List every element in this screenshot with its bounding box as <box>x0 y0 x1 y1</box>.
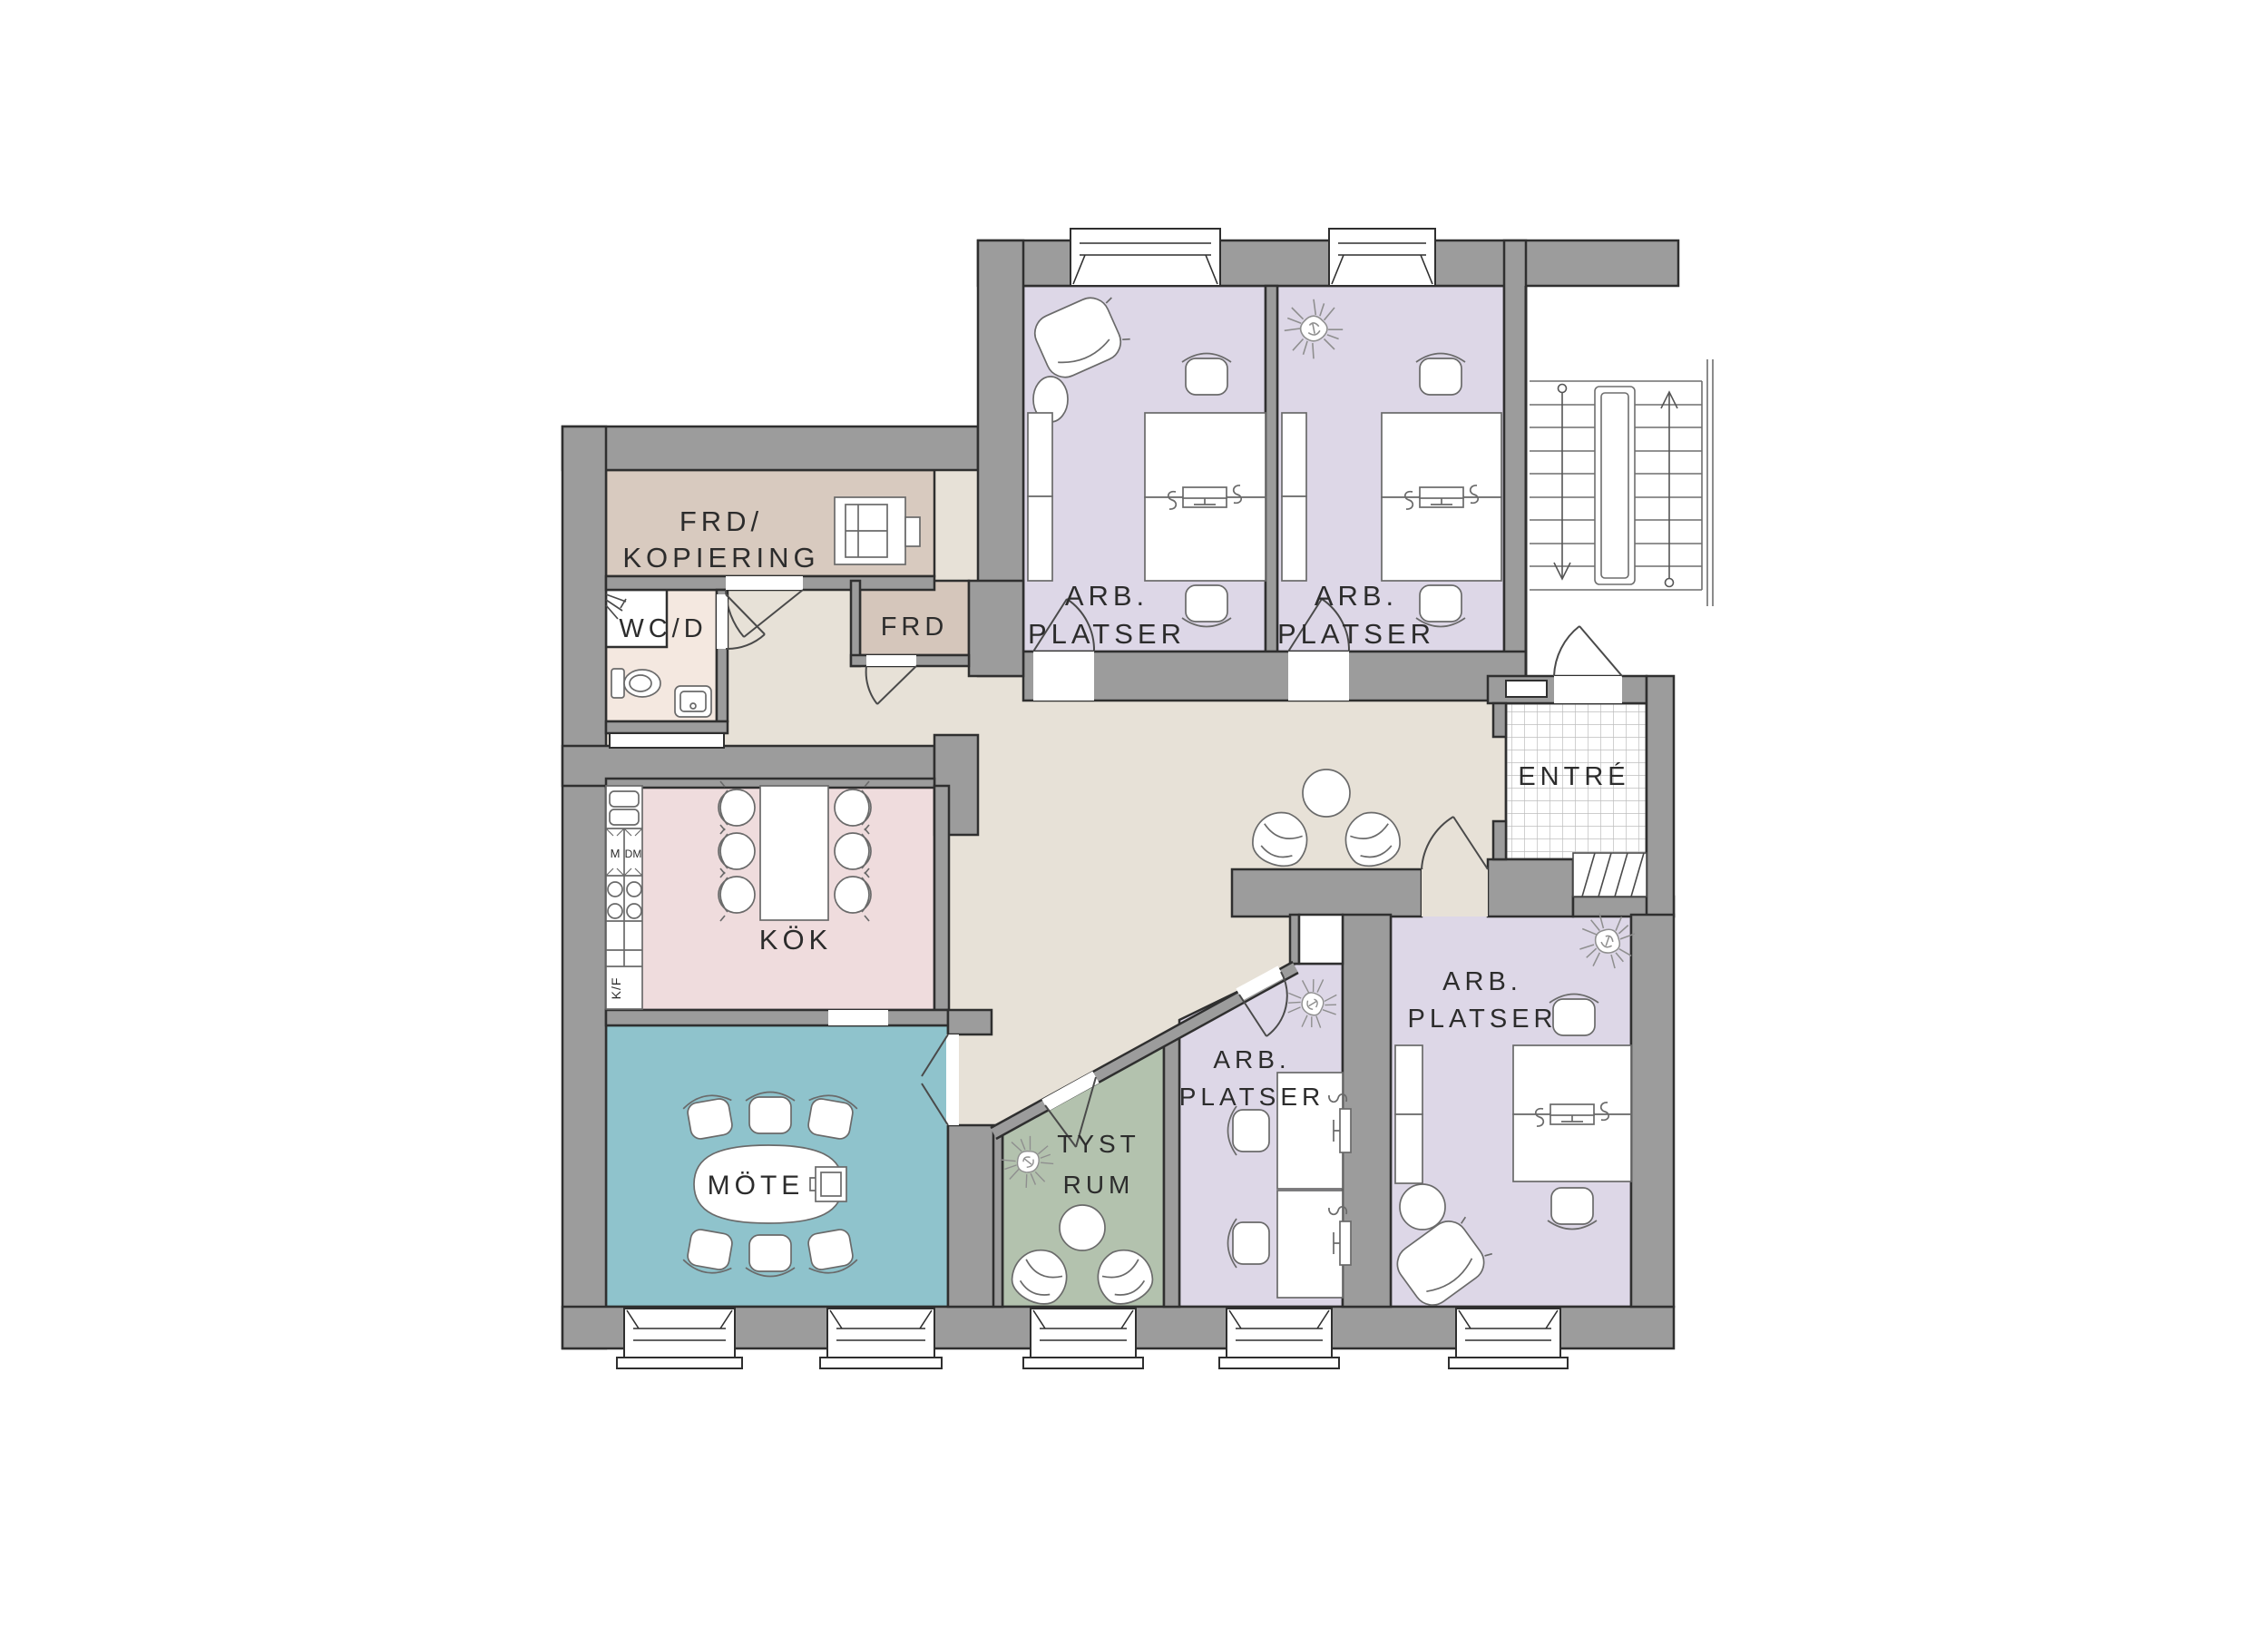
wall-wcd-bottom <box>606 721 728 733</box>
room-label-tyst-2: RUM <box>1063 1171 1135 1199</box>
window-bottom-5 <box>1449 1309 1568 1368</box>
wall-left <box>562 426 606 1348</box>
room-label-arb-s-1: ARB. <box>1213 1045 1290 1073</box>
opening-kok-mote <box>828 1010 888 1025</box>
appliance-label-m: M <box>611 847 621 860</box>
stairs <box>1530 359 1713 606</box>
wall-below-entre-left <box>1488 859 1573 917</box>
window-bottom-3 <box>1023 1309 1143 1368</box>
window-bottom-1 <box>617 1309 742 1368</box>
room-label-arb-se-2: PLATSER <box>1407 1005 1557 1034</box>
dining-table <box>760 786 828 920</box>
media-console-icon <box>810 1167 846 1201</box>
wall-tyst-left <box>993 1129 1002 1307</box>
wall-niche-left <box>1290 915 1299 964</box>
entre-sidelight-window <box>1506 681 1547 697</box>
room-label-arb-s-2: PLATSER <box>1179 1083 1325 1111</box>
wall-niche-white <box>1299 915 1343 964</box>
window-bottom-2 <box>820 1309 942 1368</box>
side-table <box>1400 1184 1445 1230</box>
desk <box>1145 497 1266 581</box>
wall-wcd-niche <box>610 733 724 748</box>
wall-entre-stub-bottom <box>1493 821 1506 859</box>
wall-office-divider <box>1266 286 1277 652</box>
wall-entre-right <box>1647 676 1674 917</box>
window-top-2 <box>1329 229 1435 286</box>
desk <box>1382 413 1501 497</box>
toilet-icon <box>611 669 660 698</box>
room-label-frd: FRD <box>881 613 949 642</box>
room-label-arb-se-1: ARB. <box>1442 967 1522 996</box>
wall-arb-se-right <box>1631 915 1674 1307</box>
wall-frd-right-column <box>969 581 1023 676</box>
lounge-table <box>1303 770 1350 817</box>
room-label-wcd: WC/D <box>619 614 707 643</box>
room-label-mote: MÖTE <box>708 1171 805 1201</box>
wall-cabinet <box>1395 1045 1422 1114</box>
room-label-frd-kopiering-1: FRD/ <box>679 505 763 537</box>
sink-icon <box>675 686 711 717</box>
wall-office-bottom <box>1023 652 1526 701</box>
wall-shelf <box>1028 413 1052 496</box>
room-label-arb-ne-2: PLATSER <box>1277 618 1435 650</box>
desk <box>1382 497 1501 581</box>
room-label-arb-nw-2: PLATSER <box>1028 618 1186 650</box>
stairs-up-arrow <box>1661 392 1677 587</box>
room-label-entre: ENTRÉ <box>1518 761 1629 791</box>
floor-plan-drawing: FRD/ KOPIERING WC/D FRD ARB. PLATSER ARB… <box>0 0 2268 1647</box>
wall-cabinet <box>1395 1114 1422 1183</box>
wall-tyst-right <box>1164 1034 1179 1307</box>
floor-plan-page: FRD/ KOPIERING WC/D FRD ARB. PLATSER ARB… <box>0 0 2268 1647</box>
dining-set <box>719 781 871 921</box>
wall-entre-stub-top <box>1493 703 1506 737</box>
round-table <box>1060 1205 1105 1250</box>
wall-shelf <box>1282 413 1306 496</box>
wall-office-right <box>1504 240 1526 701</box>
wall-mote-right-upper <box>948 1010 992 1034</box>
room-label-arb-nw-1: ARB. <box>1065 580 1149 612</box>
stairs-down-arrow <box>1554 385 1570 580</box>
wall-kok-mote-divider <box>606 1010 948 1025</box>
appliance-label-kf: K/F <box>609 977 623 1000</box>
entre-steps <box>1573 853 1647 897</box>
wall-frd-left <box>851 581 860 666</box>
room-label-frd-kopiering-2: KOPIERING <box>622 542 819 574</box>
wall-shelf <box>1282 496 1306 581</box>
desk <box>1145 413 1266 497</box>
window-top-1 <box>1070 229 1220 286</box>
appliance-label-dm: DM <box>625 848 642 860</box>
wall-kok-right <box>934 786 949 1010</box>
room-label-arb-ne-1: ARB. <box>1315 580 1398 612</box>
window-bottom-4 <box>1219 1309 1339 1368</box>
wall-left-section-top <box>562 426 978 470</box>
room-label-tyst-1: TYST <box>1057 1130 1140 1158</box>
room-label-kok: KÖK <box>759 924 832 956</box>
wall-t-horizontal <box>1232 869 1422 917</box>
wall-shelf <box>1028 496 1052 581</box>
